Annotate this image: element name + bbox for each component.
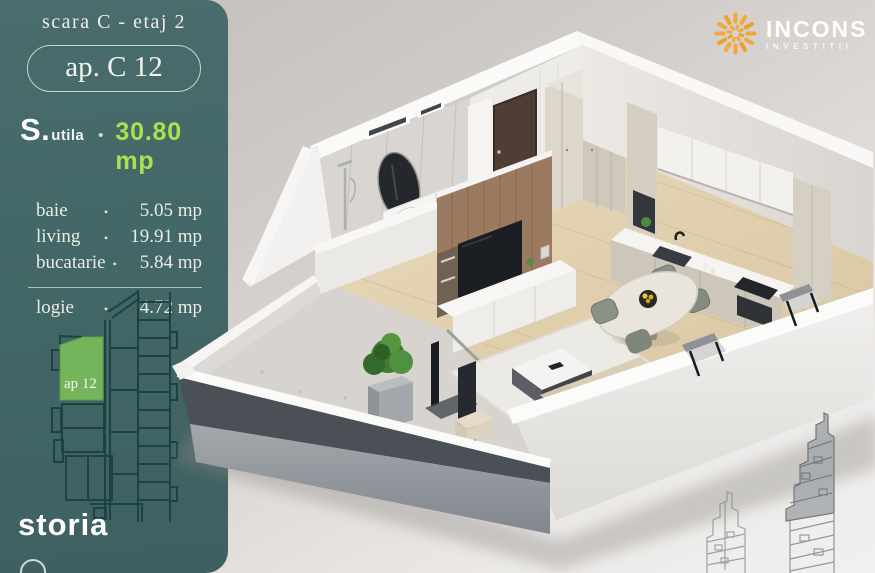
pouf (455, 410, 492, 443)
kitchen-faucet (676, 233, 684, 240)
toilet (434, 199, 461, 244)
room-name: baie (36, 200, 96, 222)
kitchen-tall-cabinet-right (793, 178, 831, 302)
room-area-value: 19.91 mp (116, 226, 202, 248)
bathroom-mirror (372, 149, 425, 224)
bullet-icon: • (96, 231, 116, 246)
kitchen-sink (652, 246, 692, 267)
developer-logo: INCONS INVESTITII (712, 10, 867, 57)
kitchen-tall-cabinet-left (627, 102, 657, 238)
tv-wall-niche (437, 246, 458, 318)
building-shadow (175, 415, 875, 570)
sidebar-panel: scara C - etaj 2 ap. C 12 S. utila • 30.… (0, 0, 228, 573)
balcony-parapet (172, 280, 550, 534)
window-opening (682, 333, 726, 376)
kitchen-wall (577, 31, 873, 262)
bathroom-divider-wall (468, 97, 492, 215)
area-rug (450, 318, 700, 456)
mini-floorplan: ap 12 (30, 272, 190, 530)
kitchen-upper-cabinets (658, 127, 793, 215)
kitchen-counter (611, 217, 795, 338)
balcony-door (425, 330, 560, 440)
building-sketch-large (786, 413, 834, 573)
dining-chair (649, 263, 680, 291)
apartment-badge: ap. C 12 (27, 45, 201, 92)
listing-poster: scara C - etaj 2 ap. C 12 S. utila • 30.… (0, 0, 875, 573)
sofa (540, 357, 700, 465)
room-name: bucatarie (36, 252, 106, 274)
balcony-plant (363, 333, 413, 430)
bullet-icon: • (96, 205, 116, 220)
usable-area-row: S. utila • 30.80 mp (20, 112, 228, 176)
vanity-sink (383, 192, 436, 264)
bullet-icon: • (98, 127, 103, 144)
partial-circle-icon (20, 559, 46, 573)
bathroom-marble-wall (316, 95, 478, 244)
room-name: living (36, 226, 96, 248)
dining-table (589, 259, 707, 352)
tv-wall (437, 150, 552, 318)
area-sub-label: utila (51, 127, 84, 144)
room-area-value: 5.84 mp (124, 252, 202, 274)
west-wall-band (248, 148, 308, 282)
building-sketch-small (707, 492, 745, 573)
room-row-living: living • 19.91 mp (36, 226, 202, 252)
developer-subtitle: INVESTITII (766, 42, 867, 51)
storia-logo: storia (18, 507, 108, 543)
cooktop (734, 277, 778, 300)
balcony-floor (182, 284, 560, 466)
unit-label: ap 12 (64, 376, 97, 392)
bullet-icon: • (106, 257, 124, 272)
door-mat (425, 393, 478, 419)
highlighted-unit: ap 12 (60, 337, 103, 400)
bathroom-half-wall (315, 204, 437, 296)
entry-wardrobe (545, 69, 625, 214)
dining-chair (623, 327, 654, 356)
coffee-table (512, 348, 592, 406)
dining-chair (589, 297, 620, 326)
dining-chair (681, 287, 712, 315)
wood-floor (330, 138, 873, 478)
floor-lamp (458, 361, 476, 455)
back-wall-top-band (310, 31, 583, 160)
tv-lowboard (437, 245, 576, 353)
oven (737, 295, 772, 328)
west-wall-pillar (242, 145, 332, 287)
floor-label: scara C - etaj 2 (0, 11, 228, 34)
dining-set (589, 259, 712, 356)
area-prefix: S. (20, 112, 50, 148)
window-opening (779, 284, 821, 326)
bathroom-floor (332, 188, 510, 264)
room-area-value: 5.05 mp (116, 200, 202, 222)
usable-area-value: 30.80 mp (115, 118, 228, 176)
shower-fixture (338, 161, 355, 230)
entry-wall (470, 45, 583, 190)
fruit-bowl (639, 290, 657, 308)
wall-heater (429, 197, 447, 216)
entry-door (494, 90, 536, 201)
window-wall (507, 284, 873, 520)
tv-screen (458, 220, 522, 298)
washing-machine (455, 177, 495, 245)
counter-plant (641, 217, 651, 227)
sun-logo-icon (712, 10, 759, 57)
room-row-baie: baie • 5.05 mp (36, 200, 202, 226)
bathtub (330, 221, 412, 281)
developer-name: INCONS (766, 17, 867, 41)
